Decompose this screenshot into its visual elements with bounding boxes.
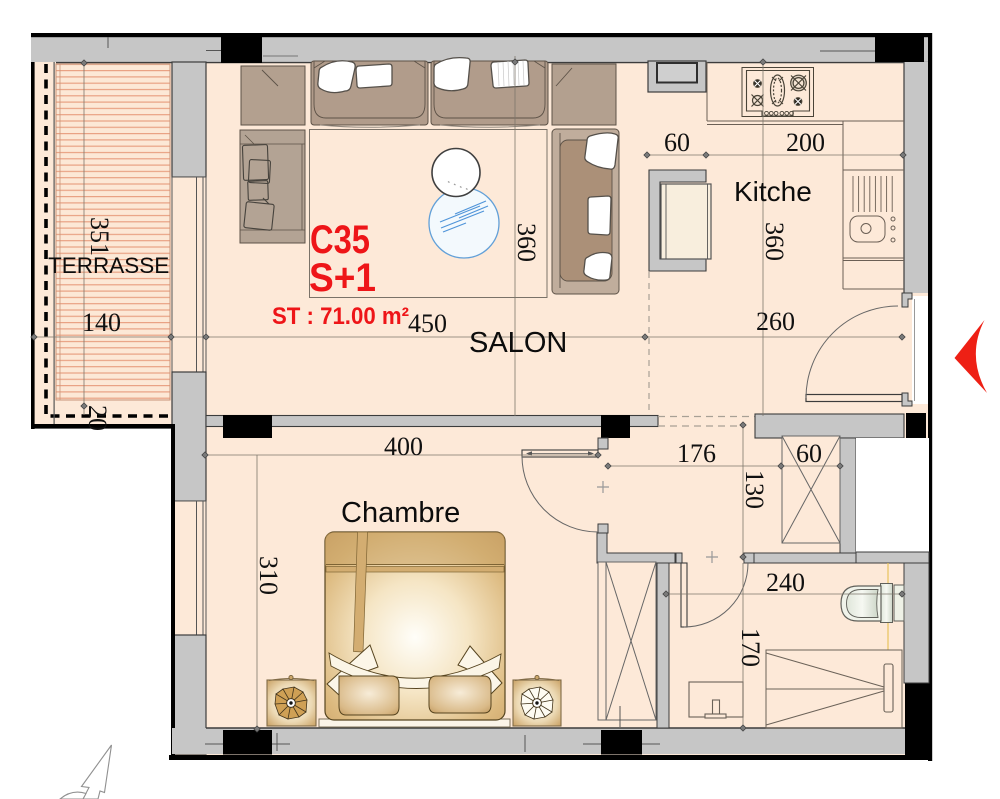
svg-text:400: 400 <box>384 432 423 461</box>
svg-text:20: 20 <box>83 405 112 431</box>
svg-text:260: 260 <box>756 307 795 336</box>
svg-text:140: 140 <box>82 308 121 337</box>
svg-text:200: 200 <box>786 128 825 157</box>
svg-text:Kitche: Kitche <box>734 176 812 207</box>
svg-text:60: 60 <box>664 128 690 157</box>
svg-text:450: 450 <box>408 309 447 338</box>
svg-text:310: 310 <box>254 556 283 595</box>
svg-text:Chambre: Chambre <box>341 497 460 529</box>
svg-text:360: 360 <box>512 223 541 262</box>
svg-text:S+1: S+1 <box>309 256 376 300</box>
svg-text:130: 130 <box>740 470 769 509</box>
svg-text:351: 351 <box>85 217 114 256</box>
svg-text:ST : 71.00 m²: ST : 71.00 m² <box>272 303 409 330</box>
svg-text:240: 240 <box>766 568 805 597</box>
svg-text:170: 170 <box>736 628 765 667</box>
svg-text:60: 60 <box>796 439 822 468</box>
svg-text:SALON: SALON <box>469 327 567 359</box>
svg-text:TERRASSE: TERRASSE <box>48 253 169 278</box>
svg-text:360: 360 <box>760 222 789 261</box>
svg-text:176: 176 <box>677 439 716 468</box>
